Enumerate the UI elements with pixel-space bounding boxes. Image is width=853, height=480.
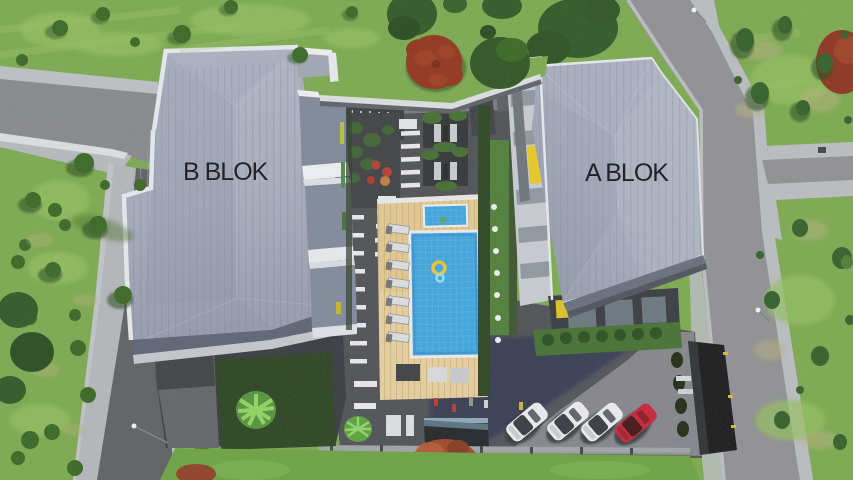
svg-text:B BLOK: B BLOK bbox=[183, 158, 269, 186]
svg-text:A BLOK: A BLOK bbox=[585, 159, 669, 187]
